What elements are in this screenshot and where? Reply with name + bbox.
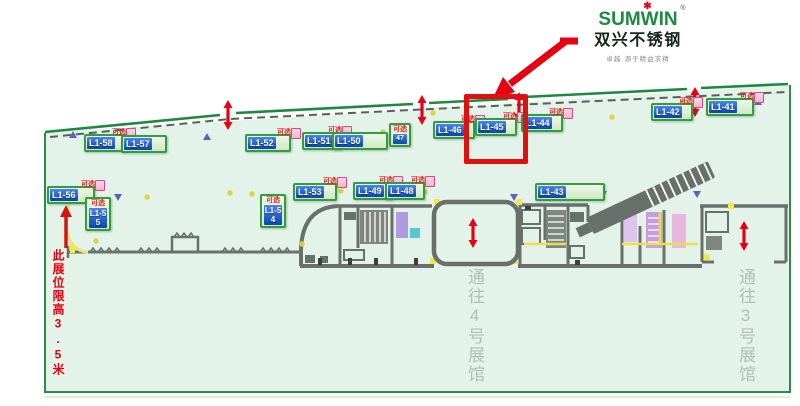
booth-L1-48[interactable]: L1-48 可选	[385, 182, 425, 200]
booth-label: L1-49	[356, 185, 384, 197]
booth-label: L1-46	[436, 124, 464, 136]
optional-tag: 可选	[81, 181, 95, 188]
booth-label: L1-48	[388, 185, 416, 197]
booth-label: L1-57	[124, 138, 152, 150]
booth-label: L1-58	[87, 137, 115, 149]
booth-label: L1-44	[524, 117, 552, 129]
booth-label: L1-50	[335, 135, 363, 147]
booth-L1-52[interactable]: L1-52 可选	[245, 134, 291, 152]
optional-tag: 可选	[266, 197, 280, 204]
callout-arrow-icon	[492, 41, 578, 100]
registered-mark: ®	[680, 5, 685, 12]
stamp-icon	[291, 128, 301, 139]
star-icon: ✱	[643, 2, 651, 12]
booth-L1-50[interactable]: L1-50	[332, 132, 388, 150]
booth-label: L1-43	[538, 186, 566, 198]
optional-tag: 可选	[393, 126, 407, 133]
booth-label: L1-51	[305, 135, 333, 147]
booth-L1-55[interactable]: 可选 L1-55	[85, 197, 111, 231]
booth-label: L1-53	[296, 186, 324, 198]
optional-tag: 可选	[679, 98, 693, 105]
stamp-icon	[425, 176, 435, 187]
booth-L1-53[interactable]: L1-53 可选	[293, 183, 337, 201]
booth-label: L1-55	[89, 208, 107, 228]
stamp-icon	[337, 177, 347, 188]
corridor-hall4-label: 通往4号展馆	[466, 268, 483, 384]
booth-label: L1-56	[50, 189, 78, 201]
booth-label: 47	[393, 134, 407, 144]
booth-47[interactable]: 可选 47	[389, 123, 411, 147]
brand-name-cn: 双兴不锈钢	[570, 32, 706, 50]
highlight-rect	[464, 94, 528, 164]
exhibition-floorplan: SUMWIN ✱ ® 双兴不锈钢 卓越·源于精益求精 此展位限高3.5米 通往4…	[0, 0, 800, 406]
logo-text: SUMWIN	[598, 9, 677, 30]
corridor-hall3-label: 通往3号展馆	[737, 268, 754, 384]
optional-tag: 可选	[91, 200, 105, 207]
booth-L1-57[interactable]: L1-57	[121, 135, 167, 153]
stamp-icon	[754, 92, 764, 103]
logo-wordmark: SUMWIN ✱ ®	[598, 10, 677, 29]
booth-label: L1-41	[709, 101, 737, 113]
optional-tag: 可选	[411, 177, 425, 184]
booth-label: L1-54	[264, 205, 282, 225]
booth-L1-54[interactable]: 可选 L1-54	[260, 194, 286, 228]
optional-tag: 可选	[549, 109, 563, 116]
stamp-icon	[95, 180, 105, 191]
optional-tag: 可选	[323, 178, 337, 185]
optional-tag: 可选	[740, 93, 754, 100]
booth-L1-43[interactable]: L1-43	[535, 183, 605, 201]
stamp-icon	[693, 97, 703, 108]
booth-L1-41[interactable]: L1-41 可选	[706, 98, 754, 116]
brand-logo: SUMWIN ✱ ® 双兴不锈钢 卓越·源于精益求精	[570, 10, 706, 63]
booth-L1-42[interactable]: L1-42 可选	[651, 103, 693, 121]
height-limit-note: 此展位限高3.5米	[52, 249, 64, 377]
booth-L1-58[interactable]: L1-58 可选	[84, 134, 126, 152]
optional-tag: 可选	[277, 129, 291, 136]
brand-tagline: 卓越·源于精益求精	[570, 53, 706, 63]
stamp-icon	[563, 108, 573, 119]
booth-label: L1-42	[654, 106, 682, 118]
booth-label: L1-52	[248, 137, 276, 149]
